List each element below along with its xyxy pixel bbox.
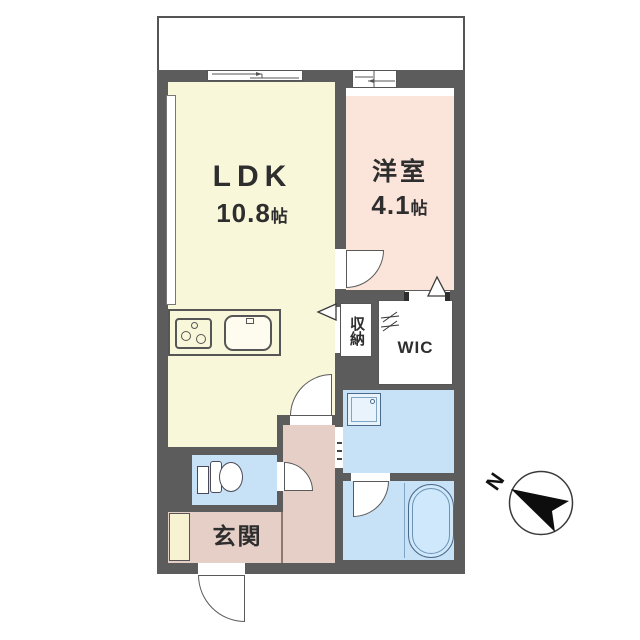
entrance-label: 玄関: [192, 523, 283, 549]
wic-opening-post: [445, 292, 450, 301]
ldk-area: 10.8帖: [180, 199, 325, 229]
closet-label: 収納: [340, 305, 372, 357]
closet-direction-triangle-icon: [318, 304, 336, 320]
wic-folding-door-symbol: [381, 312, 399, 331]
western-room-area: 4.1帖: [346, 191, 454, 221]
ldk-name: LDK: [180, 160, 325, 195]
compass-icon: [510, 472, 573, 535]
wic-label: WIC: [378, 338, 453, 358]
floor-plan: LDK 10.8帖 洋室 4.1帖 収納 WIC 玄関 N: [0, 0, 640, 640]
wic-opening-post: [404, 292, 409, 301]
ldk-label: LDK 10.8帖: [180, 160, 325, 228]
western-room-label: 洋室 4.1帖: [346, 158, 454, 221]
plan-symbols: [0, 0, 640, 640]
western-room-name: 洋室: [346, 158, 454, 187]
bedroom-window-symbol: [355, 71, 395, 87]
wic-direction-triangle-icon: [428, 277, 447, 296]
ldk-window-symbol: [212, 72, 299, 78]
